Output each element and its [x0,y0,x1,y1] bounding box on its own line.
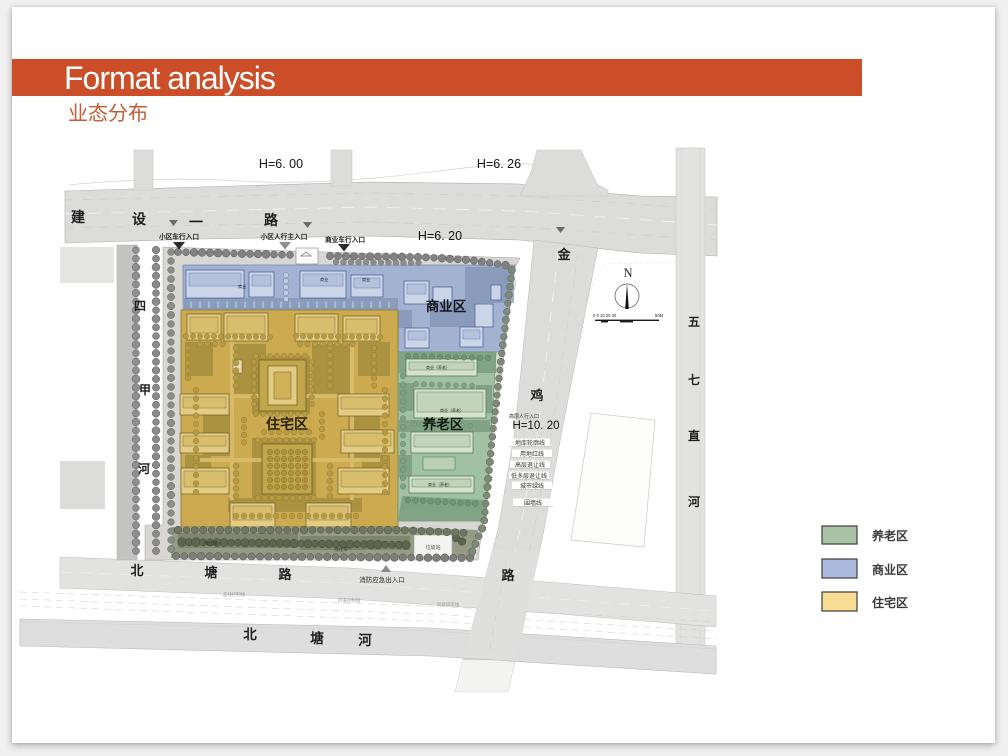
svg-text:商业: 商业 [238,283,246,290]
svg-text:小区人行主入口: 小区人行主入口 [260,232,308,241]
svg-text:商业（养老）: 商业（养老） [440,407,464,413]
svg-text:H=6. 26: H=6. 26 [477,157,521,171]
svg-text:养老区: 养老区 [871,528,908,543]
svg-text:地库轮廓线: 地库轮廓线 [515,439,545,447]
svg-text:金: 金 [556,247,571,262]
svg-text:50M: 50M [655,313,664,318]
svg-text:七: 七 [688,373,700,387]
svg-text:H=6. 20: H=6. 20 [418,229,462,243]
svg-text:商业: 商业 [320,276,328,283]
svg-text:0 5 10 20 30: 0 5 10 20 30 [593,313,617,318]
svg-text:五: 五 [688,315,700,329]
svg-text:蓝线控制线: 蓝线控制线 [223,591,246,598]
svg-text:一: 一 [189,214,203,230]
svg-text:河道控制线: 河道控制线 [338,597,361,604]
svg-text:N: N [623,266,632,280]
svg-text:商业（养老）: 商业（养老） [426,364,450,370]
svg-text:商业车行入口: 商业车行入口 [325,235,365,244]
svg-text:商业区: 商业区 [426,298,467,314]
svg-text:鸡: 鸡 [529,388,543,403]
svg-text:北: 北 [130,563,143,578]
svg-text:河: 河 [358,632,372,648]
svg-text:住宅区: 住宅区 [872,595,908,610]
svg-text:绿化带: 绿化带 [204,540,218,547]
svg-text:河: 河 [687,494,700,509]
svg-text:养老区: 养老区 [422,416,464,432]
svg-text:高层退让线: 高层退让线 [515,461,545,469]
svg-text:商业（养老）: 商业（养老） [428,481,452,487]
svg-text:建: 建 [71,209,85,225]
svg-text:商业: 商业 [362,276,370,283]
svg-text:路: 路 [264,212,279,228]
svg-text:商业区: 商业区 [872,562,908,577]
svg-text:塘: 塘 [204,565,217,580]
svg-text:路: 路 [278,567,292,582]
svg-text:用地红线: 用地红线 [520,450,544,458]
svg-text:河: 河 [137,461,150,476]
svg-text:甲: 甲 [139,383,151,397]
svg-text:现状驳岸线: 现状驳岸线 [437,601,460,608]
svg-text:塘: 塘 [310,630,324,646]
svg-text:四: 四 [134,299,146,313]
svg-text:北: 北 [243,627,257,642]
svg-text:小区车行入口: 小区车行入口 [158,232,199,241]
svg-text:消防应急出入口: 消防应急出入口 [359,575,405,584]
svg-text:H=10. 20: H=10. 20 [513,420,560,432]
svg-text:低多层退让线: 低多层退让线 [511,472,547,480]
svg-text:高层人行入口: 高层人行入口 [509,413,539,420]
svg-text:垃圾站: 垃圾站 [425,544,440,551]
svg-text:住宅区: 住宅区 [266,416,308,432]
svg-text:设: 设 [132,211,147,227]
svg-text:城市绿线: 城市绿线 [520,482,544,490]
svg-text:围墙线: 围墙线 [524,499,542,507]
svg-text:直: 直 [688,428,700,443]
svg-text:路: 路 [501,568,515,583]
svg-text:绿化带: 绿化带 [334,546,348,553]
svg-text:H=6. 00: H=6. 00 [259,157,303,171]
